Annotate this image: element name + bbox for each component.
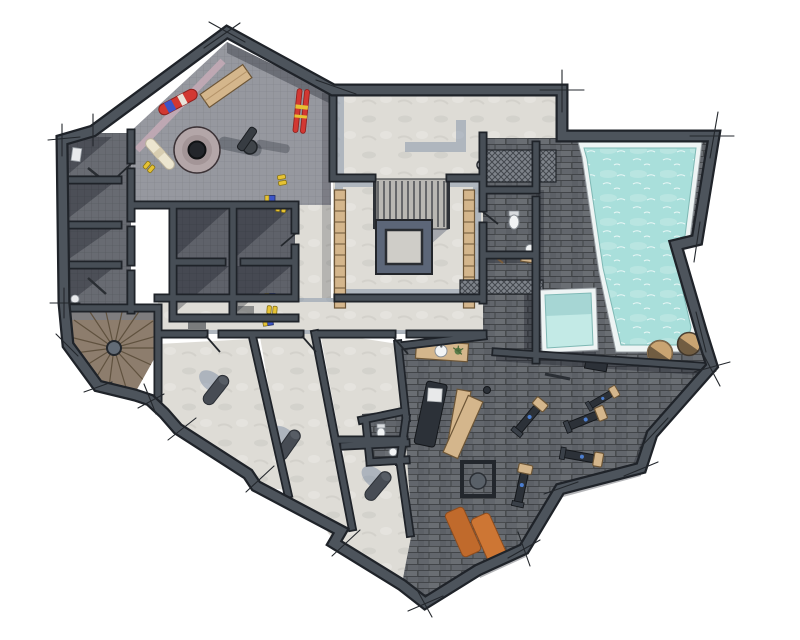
railing-grate <box>486 150 556 182</box>
plunge-pool <box>540 288 598 353</box>
stair-center-post <box>107 341 121 355</box>
stairwell-opening <box>376 220 432 274</box>
kettlebell <box>484 387 491 394</box>
toilet <box>509 215 519 229</box>
wood-step-strip-left <box>335 190 346 308</box>
floorplan-svg <box>0 0 800 640</box>
floorplan-canvas <box>0 0 800 640</box>
railing-grate-2 <box>460 280 543 294</box>
sink-2 <box>389 448 397 456</box>
